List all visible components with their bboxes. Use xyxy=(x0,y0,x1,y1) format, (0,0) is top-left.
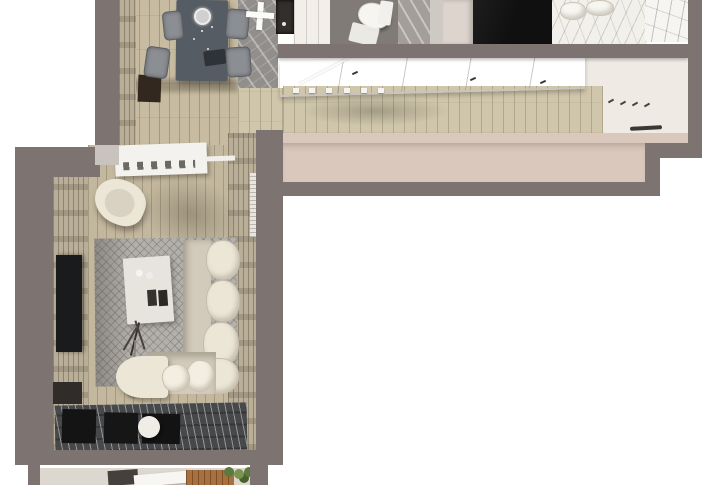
bed-pillow xyxy=(560,2,586,20)
table-tray xyxy=(203,49,227,67)
wardrobe-foot xyxy=(344,88,350,93)
bed-pillow xyxy=(586,0,614,16)
wardrobe-foot xyxy=(293,88,299,93)
wardrobe-foot xyxy=(361,88,367,93)
wall-dining-left xyxy=(95,0,119,152)
wall-right xyxy=(688,0,702,158)
kitchen-tall-cabinet xyxy=(294,0,330,47)
slat-wall-niche xyxy=(138,75,162,103)
table-glassware xyxy=(201,30,203,32)
sofa-bolster-pillow xyxy=(206,240,240,280)
hallway-floor-shadow xyxy=(300,96,450,126)
wall-balcony-right xyxy=(250,452,268,485)
wall-bath-bedroom-band xyxy=(278,44,688,58)
tv xyxy=(56,255,82,352)
fridge-knob xyxy=(282,22,286,26)
bathroom-marble-wall xyxy=(398,0,430,46)
wall-living-bottom xyxy=(15,450,268,465)
refrigerator xyxy=(276,0,294,34)
wall-balcony-left xyxy=(28,465,40,485)
wall-living-top-corner xyxy=(15,147,100,177)
wardrobe-foot xyxy=(378,88,384,93)
bedroom-dark-floor xyxy=(473,0,555,45)
wall-living-left xyxy=(15,147,53,465)
table-vase xyxy=(136,269,143,276)
cross-ceiling-lamp xyxy=(245,1,275,31)
sofa-bolster-pillow xyxy=(206,280,240,322)
apartment-floorplan-render xyxy=(0,0,726,485)
console-shelf-extension xyxy=(205,155,235,161)
wall-top-ledge xyxy=(95,145,119,165)
double-bed xyxy=(552,0,647,45)
south-wall-face xyxy=(283,143,645,182)
wardrobe-foot xyxy=(309,88,315,93)
table-candles xyxy=(158,290,168,307)
dining-left-slat-wall xyxy=(119,0,136,152)
pendant-lamp xyxy=(194,8,211,25)
balcony-plants xyxy=(224,467,234,477)
floor-gap xyxy=(62,409,97,444)
sofa-chaise xyxy=(116,356,168,398)
wall-living-right xyxy=(256,130,283,465)
south-wall-face-top xyxy=(283,133,688,143)
wall-bottom-main xyxy=(262,182,660,196)
table-candles xyxy=(147,289,157,306)
wardrobe-foot xyxy=(326,88,332,93)
dining-chair xyxy=(162,10,185,41)
wall-right-bottom-band xyxy=(645,143,702,158)
bedroom-sketch-furniture xyxy=(645,0,688,42)
cross-lamp-horizontal xyxy=(246,11,274,19)
bedroom-dresser-strip xyxy=(443,0,473,45)
tv-cabinet xyxy=(52,382,82,404)
coffee-table xyxy=(123,255,174,324)
dining-chair xyxy=(225,46,252,78)
bedroom-wall-strip xyxy=(430,0,443,45)
dining-chair xyxy=(143,45,171,79)
floor-gap xyxy=(104,412,139,444)
